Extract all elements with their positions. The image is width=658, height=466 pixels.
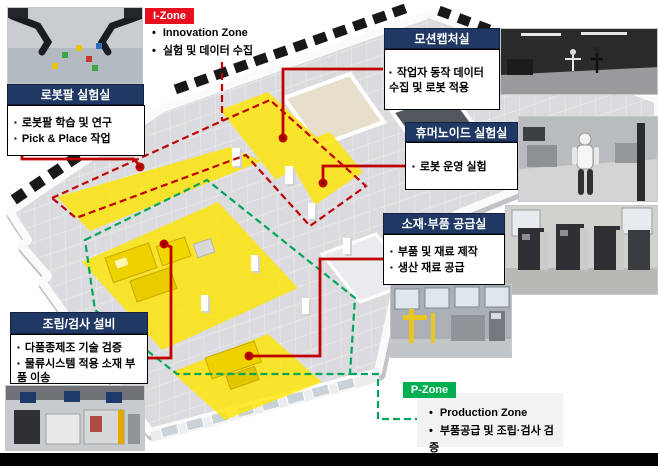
callout-header-robot-arm: 로봇팔 실험실 [7, 84, 144, 105]
list-item: 실험 및 데이터 수집 [152, 43, 297, 61]
list-item: 로봇팔 학습 및 연구 [14, 116, 141, 131]
connector-dot-humanoid [319, 179, 328, 188]
humanoid-photo [518, 116, 658, 202]
i-zone-list: Innovation Zone 실험 및 데이터 수집 [152, 25, 297, 60]
callout-list-humanoid: 로봇 운영 실험 [405, 142, 518, 190]
list-item: 물류시스템 적용 소재 부품 이송 [17, 357, 144, 386]
callout-header-assembly: 조립/검사 설비 [10, 312, 148, 334]
supply-room-photo [390, 284, 512, 358]
connector-dot-assembly [160, 240, 169, 249]
p-zone-badge: P-Zone [403, 382, 456, 398]
connector-dot-robot-arm [136, 163, 145, 172]
callout-title: 모션캡처실 [414, 30, 469, 47]
printer-machines [518, 224, 650, 270]
list-item: Production Zone [429, 405, 559, 423]
list-item: 생산 재료 공급 [390, 261, 501, 276]
callout-title: 로봇팔 실험실 [41, 86, 111, 103]
supply-printers-photo [505, 205, 658, 295]
list-item: Innovation Zone [152, 25, 297, 43]
callout-header-supply: 소재·부품 공급실 [383, 213, 505, 234]
callout-list-robot-arm: 로봇팔 학습 및 연구 Pick & Place 작업 [7, 105, 145, 156]
list-item: Pick & Place 작업 [14, 132, 141, 147]
list-item: 다품종제조 기술 검증 [17, 341, 144, 356]
connector-dot-supply [245, 352, 254, 361]
bottom-black-bar [0, 453, 658, 466]
list-item: 로봇 운영 실험 [412, 160, 514, 175]
i-zone-badge-label: I-Zone [153, 10, 186, 22]
callout-header-motion-capture: 모션캡처실 [384, 28, 500, 49]
i-zone-badge: I-Zone [145, 8, 194, 24]
motion-capture-photo [500, 28, 658, 95]
assembly-line-photo [5, 385, 145, 451]
callout-list-motion-capture: 작업자 동작 데이터 수집 및 로봇 적용 [384, 49, 500, 110]
callout-title: 소재·부품 공급실 [402, 215, 487, 232]
list-item: 작업자 동작 데이터 수집 및 로봇 적용 [389, 66, 496, 95]
connector-dot-motion-capture [279, 134, 288, 143]
p-zone-list: Production Zone 부품공급 및 조립·검사 검증 [417, 393, 563, 447]
p-zone-badge-label: P-Zone [411, 384, 448, 396]
callout-header-humanoid: 휴머노이드 실험실 [405, 122, 518, 142]
callout-list-assembly: 다품종제조 기술 검증 물류시스템 적용 소재 부품 이송 [10, 334, 148, 384]
list-item: 부품 및 재료 제작 [390, 245, 501, 260]
callout-title: 휴머노이드 실험실 [416, 124, 508, 141]
callout-list-supply: 부품 및 재료 제작 생산 재료 공급 [383, 234, 505, 285]
robot-arm-photo [7, 7, 143, 84]
callout-title: 조립/검사 설비 [43, 315, 116, 332]
